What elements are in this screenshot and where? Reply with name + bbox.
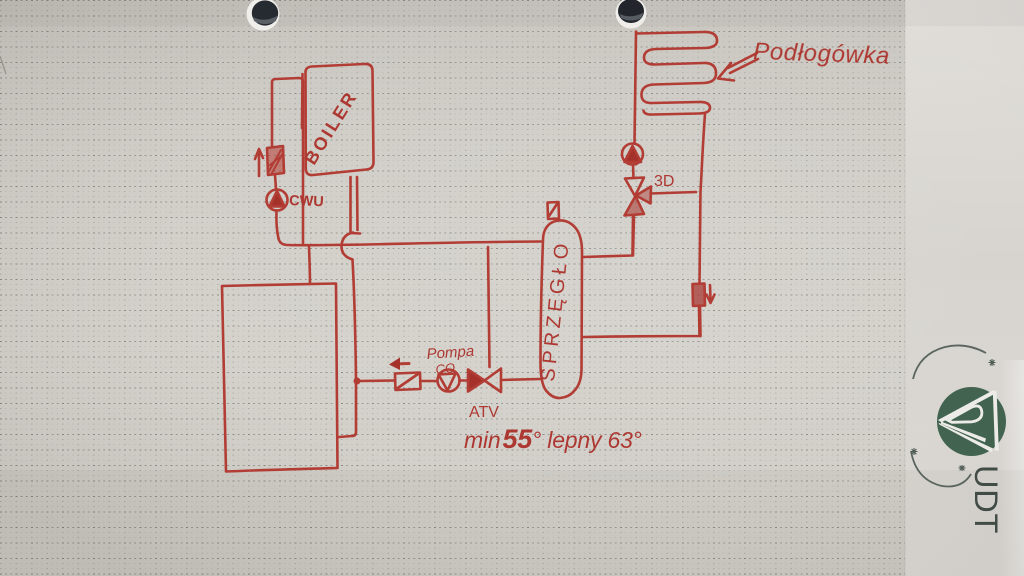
svg-text:3D: 3D — [654, 173, 674, 190]
svg-text:ATV: ATV — [469, 404, 499, 421]
svg-text:Podłogówka: Podłogówka — [753, 38, 891, 70]
svg-text:UDT: UDT — [968, 465, 1004, 534]
svg-text:CO: CO — [435, 360, 456, 377]
svg-text:min55° lepny 63°: min55° lepny 63° — [464, 424, 642, 454]
svg-text:CWU: CWU — [289, 193, 324, 210]
